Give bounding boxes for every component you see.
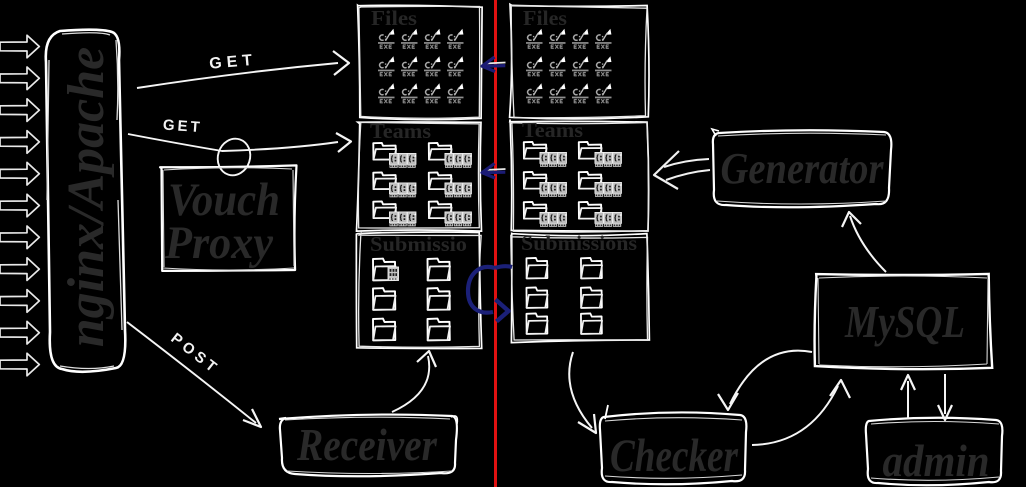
svg-text:MySQL: MySQL: [844, 296, 965, 347]
svg-text:admin: admin: [883, 435, 990, 486]
svg-text:Checker: Checker: [610, 430, 739, 482]
svg-text:Teams: Teams: [370, 119, 431, 143]
svg-text:Files: Files: [371, 6, 417, 30]
svg-text:Teams: Teams: [522, 118, 583, 142]
svg-text:Submissions: Submissions: [521, 231, 637, 255]
svg-text:GET: GET: [162, 116, 203, 136]
svg-text:Receiver: Receiver: [296, 420, 437, 470]
svg-text:Generator: Generator: [721, 144, 885, 193]
svg-text:nginx/Apache: nginx/Apache: [58, 47, 115, 348]
svg-text:Submissio: Submissio: [370, 232, 467, 256]
svg-text:Proxy: Proxy: [164, 217, 273, 269]
svg-text:Files: Files: [523, 6, 567, 30]
